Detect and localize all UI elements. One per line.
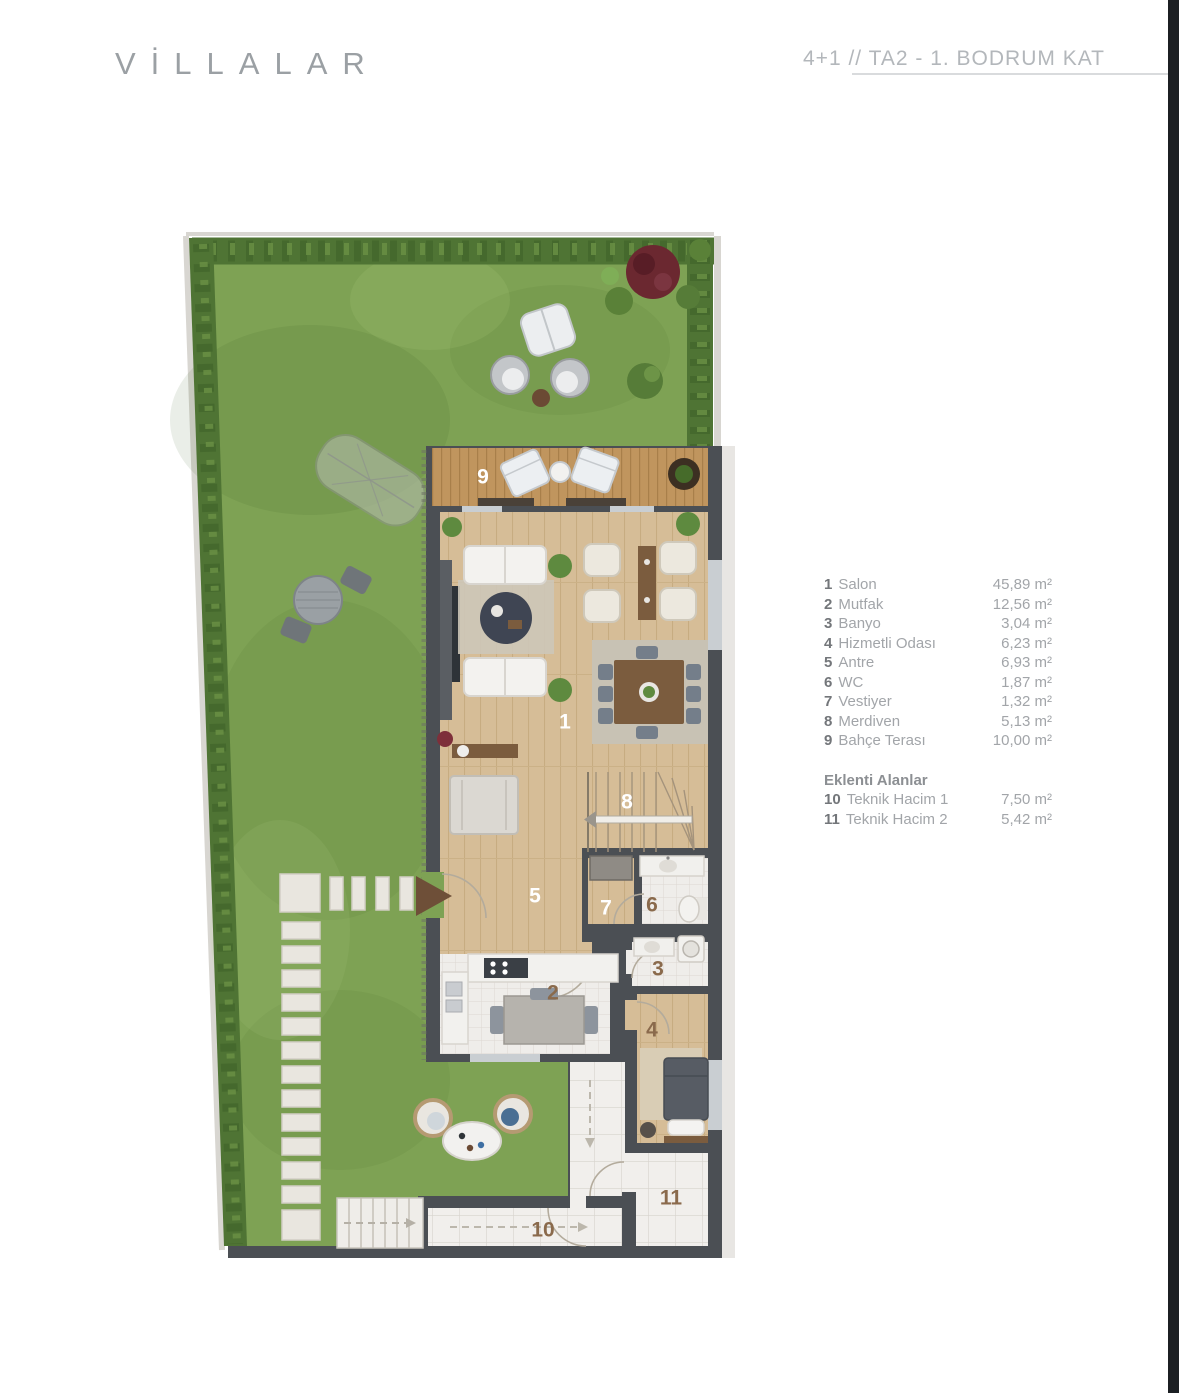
room-label-merdiven: 8 bbox=[621, 792, 633, 813]
legend-row: 3 Banyo 3,04 m² bbox=[824, 614, 1052, 634]
room-label-banyo: 3 bbox=[652, 959, 664, 980]
legend-section-title: Eklenti Alanlar bbox=[824, 771, 1052, 791]
room-label-mutfak: 2 bbox=[547, 983, 559, 1004]
room-label-teknik-1: 10 bbox=[531, 1220, 554, 1241]
room-legend: 1 Salon 45,89 m² 2 Mutfak 12,56 m² 3 Ban… bbox=[824, 575, 1052, 829]
room-label-vestiyer: 7 bbox=[600, 898, 612, 919]
bed bbox=[664, 1058, 708, 1120]
legend-row: 6 WC 1,87 m² bbox=[824, 673, 1052, 693]
wardrobe bbox=[590, 856, 632, 880]
kitchen-table bbox=[504, 996, 584, 1044]
legend-row: 1 Salon 45,89 m² bbox=[824, 575, 1052, 595]
legend-num: 1 bbox=[824, 575, 832, 595]
antre-floor bbox=[440, 842, 582, 954]
stair-handrail bbox=[592, 816, 692, 823]
room-label-salon: 1 bbox=[559, 712, 571, 733]
coffee-table bbox=[480, 592, 532, 644]
brochure-page: VİLLALAR 4+1 // TA2 - 1. BODRUM KAT bbox=[0, 0, 1179, 1393]
legend-area: 45,89 m² bbox=[993, 575, 1052, 595]
legend-row: 9 Bahçe Terası 10,00 m² bbox=[824, 731, 1052, 751]
room-label-terrace: 9 bbox=[477, 467, 489, 488]
room-label-antre: 5 bbox=[529, 886, 541, 907]
room-label-wc: 6 bbox=[646, 895, 658, 916]
room-label-hizmetli: 4 bbox=[646, 1020, 658, 1041]
console bbox=[638, 546, 656, 620]
legend-row: 2 Mutfak 12,56 m² bbox=[824, 595, 1052, 615]
legend-row: 11 Teknik Hacim 2 5,42 m² bbox=[824, 810, 1052, 830]
tv-unit bbox=[440, 560, 452, 720]
side-table bbox=[532, 389, 550, 407]
terrace-deck bbox=[432, 448, 708, 506]
legend-name: Salon bbox=[838, 575, 876, 595]
legend-row: 4 Hizmetli Odası 6,23 m² bbox=[824, 634, 1052, 654]
red-tree bbox=[626, 245, 680, 299]
room-label-teknik-2: 11 bbox=[660, 1188, 682, 1209]
service-room-furniture bbox=[640, 1048, 708, 1143]
legend-row: 10 Teknik Hacim 1 7,50 m² bbox=[824, 790, 1052, 810]
daybed bbox=[450, 776, 518, 834]
legend-row: 5 Antre 6,93 m² bbox=[824, 653, 1052, 673]
legend-row: 8 Merdiven 5,13 m² bbox=[824, 712, 1052, 732]
legend-row: 7 Vestiyer 1,32 m² bbox=[824, 692, 1052, 712]
exterior-stairs bbox=[337, 1198, 423, 1248]
